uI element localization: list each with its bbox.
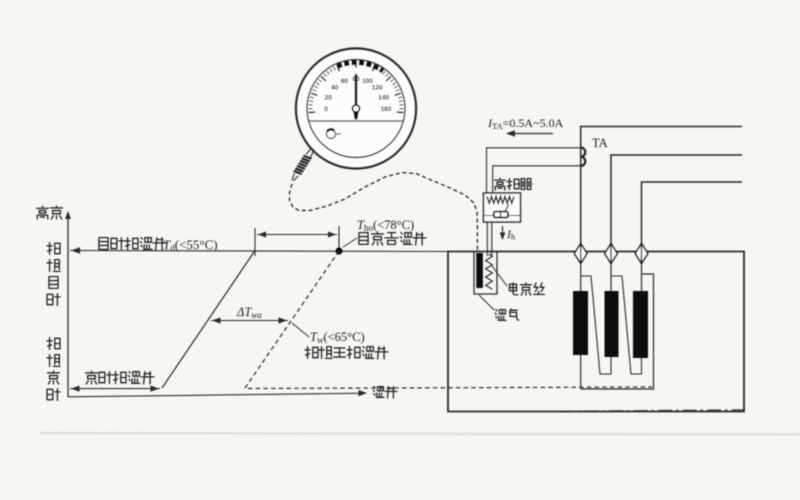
svg-text:60: 60 — [341, 78, 349, 85]
svg-text:120: 120 — [372, 85, 383, 92]
svg-text:TA: TA — [592, 136, 608, 150]
svg-text:140: 140 — [378, 94, 389, 101]
svg-text:Ih: Ih — [506, 229, 516, 242]
svg-text:0: 0 — [324, 106, 328, 113]
svg-text:40: 40 — [331, 85, 339, 92]
svg-text:20: 20 — [325, 94, 333, 101]
svg-text:160: 160 — [381, 106, 392, 113]
